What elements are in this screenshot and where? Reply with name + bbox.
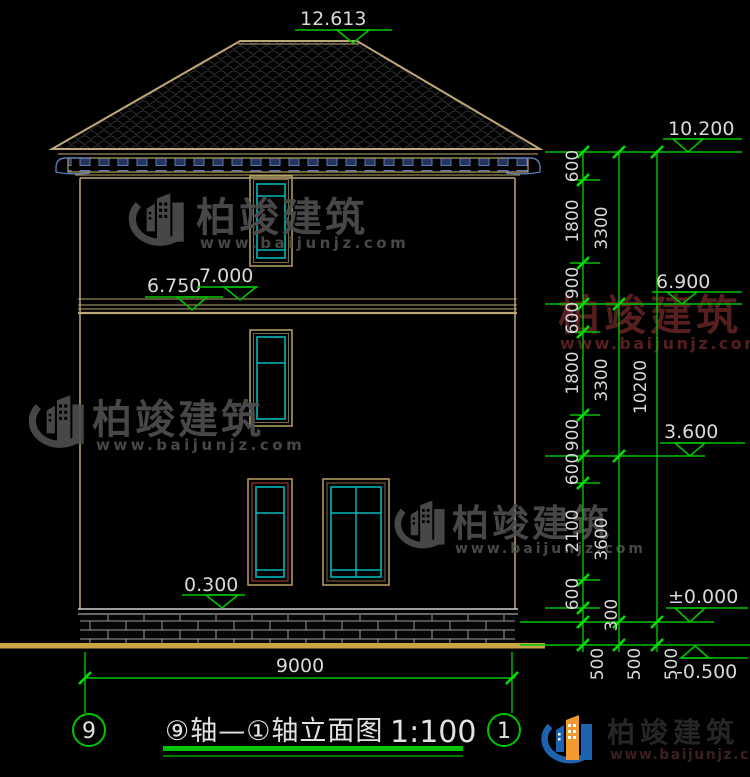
elevation-value: 12.613 bbox=[300, 8, 366, 30]
brand-site: www.baijunjz.com bbox=[610, 747, 750, 763]
elevation-value: ±0.000 bbox=[668, 586, 738, 608]
drawing-title: ⑨轴—①轴立面图 bbox=[165, 716, 383, 747]
elevation-value: 10.200 bbox=[668, 118, 734, 140]
title-underline-thick bbox=[163, 746, 463, 751]
elevation-value: 0.300 bbox=[184, 574, 238, 596]
marker-floor1: 3.600 bbox=[660, 421, 745, 456]
marker-ground: ±0.000 bbox=[666, 586, 748, 622]
title-block: 9 1 ⑨轴—①轴立面图 1:100 bbox=[73, 714, 520, 756]
marker-plinth: 0.300 bbox=[182, 574, 245, 608]
watermark-middle-left: 柏竣建筑 www.baijunjz.com bbox=[32, 395, 305, 454]
dim-label: 600 bbox=[563, 302, 583, 334]
watermark-logo-icon bbox=[398, 501, 445, 546]
dim-label: 2100 bbox=[563, 509, 583, 552]
bottom-dimension: 9000 bbox=[79, 652, 518, 713]
dim-label: 900 bbox=[563, 267, 583, 299]
dim-label: 600 bbox=[563, 453, 583, 485]
marker-eave: 10.200 bbox=[663, 118, 742, 152]
brand-logo-icon bbox=[545, 715, 592, 760]
watermark-site: www.baijunjz.com bbox=[96, 436, 305, 454]
dim-labels-col3: 10200 bbox=[631, 360, 651, 414]
dim-label: 900 bbox=[563, 419, 583, 451]
marker-base: -0.500 bbox=[676, 646, 748, 683]
drawing-canvas: 柏竣建筑 www.baijunjz.com 柏竣建筑 www.baijunjz.… bbox=[0, 0, 750, 777]
drawing-scale: 1:100 bbox=[390, 715, 476, 750]
ground-line bbox=[0, 643, 545, 649]
dim-label: 500 bbox=[625, 648, 645, 680]
dim-label: 3300 bbox=[592, 206, 612, 249]
marker-ridge: 12.613 bbox=[295, 8, 392, 43]
dim-label: 1800 bbox=[563, 351, 583, 394]
elevation-value: 7.000 bbox=[199, 265, 253, 287]
brand-logo: 柏竣建筑 www.baijunjz.com bbox=[545, 715, 750, 763]
width-dimension: 9000 bbox=[276, 655, 324, 677]
dim-label: 300 bbox=[602, 599, 622, 631]
dim-label: 600 bbox=[563, 578, 583, 610]
elevation-value: 6.750 bbox=[147, 275, 201, 297]
watermark-logo-icon bbox=[132, 193, 183, 242]
dim-label: 500 bbox=[588, 648, 608, 680]
roof bbox=[52, 41, 540, 149]
floor-band bbox=[78, 299, 517, 313]
marker-band-left-high: 7.000 bbox=[197, 265, 258, 300]
dim-label: 3300 bbox=[592, 358, 612, 401]
cad-elevation-drawing: 柏竣建筑 www.baijunjz.com 柏竣建筑 www.baijunjz.… bbox=[0, 0, 750, 777]
axis-number-right: 1 bbox=[497, 719, 511, 744]
watermark-brand: 柏竣建筑 bbox=[452, 502, 612, 545]
eave-fascia bbox=[56, 154, 540, 175]
watermark-site: www.baijunjz.com bbox=[200, 234, 409, 252]
brand-name: 柏竣建筑 bbox=[607, 716, 739, 749]
building-elevation bbox=[0, 41, 545, 649]
plinth bbox=[78, 609, 518, 643]
dim-label: 3600 bbox=[592, 517, 612, 560]
watermark-logo-icon bbox=[32, 395, 83, 444]
elevation-value: -0.500 bbox=[676, 661, 737, 683]
watermark-site: www.baijunjz.com bbox=[455, 541, 646, 557]
watermark-site: www.baijunjz.com bbox=[560, 334, 750, 353]
window-floor1-right bbox=[323, 479, 389, 585]
watermark-top: 柏竣建筑 www.baijunjz.com bbox=[132, 193, 409, 252]
dim-label: 1800 bbox=[563, 199, 583, 242]
axis-number-left: 9 bbox=[82, 719, 96, 744]
dim-label: 600 bbox=[563, 150, 583, 182]
elevation-value: 6.900 bbox=[656, 271, 710, 293]
dim-label: 10200 bbox=[631, 360, 651, 414]
window-floor1-left bbox=[248, 479, 292, 585]
dim-labels-base: 500 500 500 bbox=[588, 648, 682, 680]
elevation-value: 3.600 bbox=[664, 421, 718, 443]
